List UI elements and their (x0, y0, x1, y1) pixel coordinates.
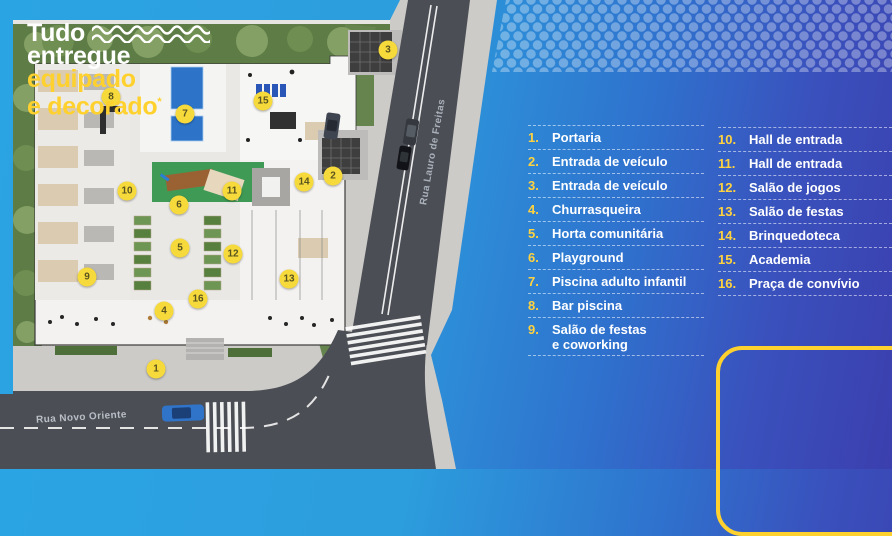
promo-box (716, 346, 892, 536)
legend-item-4: 4.Churrasqueira (528, 198, 704, 222)
legend-item-3: 3.Entrada de veículo (528, 174, 704, 198)
legend-item-number: 4. (528, 202, 545, 217)
legend-item-1: 1.Portaria (528, 126, 704, 150)
legend-item-number: 2. (528, 154, 545, 169)
map-marker-10: 10 (118, 182, 137, 201)
legend-item-number: 13. (718, 204, 742, 219)
legend-column-right: 10.Hall de entrada11.Hall de entrada12.S… (718, 127, 892, 296)
map-marker-4: 4 (155, 302, 174, 321)
legend-item-number: 14. (718, 228, 742, 243)
legend-item-label: Portaria (552, 130, 601, 145)
map-marker-5: 5 (171, 239, 190, 258)
legend-item-7: 7.Piscina adulto infantil (528, 270, 704, 294)
flyer-canvas: { "legend": { "left": [ {"num":"1.","lab… (0, 0, 892, 469)
legend-item-number: 7. (528, 274, 545, 289)
legend-item-label: Churrasqueira (552, 202, 641, 217)
legend-item-10: 10.Hall de entrada (718, 128, 892, 152)
legend-item-label: Entrada de veículo (552, 178, 668, 193)
legend-item-15: 15.Academia (718, 248, 892, 272)
legend-item-label: Horta comunitária (552, 226, 663, 241)
map-marker-14: 14 (295, 173, 314, 192)
legend-item-number: 15. (718, 252, 742, 267)
squiggle-icon (92, 25, 210, 43)
legend-item-5: 5.Horta comunitária (528, 222, 704, 246)
legend-item-label: Hall de entrada (749, 132, 842, 147)
legend-item-label: Brinquedoteca (749, 228, 840, 243)
promo-footnote-mark: * (157, 96, 161, 108)
legend-item-number: 11. (718, 156, 742, 171)
legend-item-11: 11.Hall de entrada (718, 152, 892, 176)
legend-item-number: 8. (528, 298, 545, 313)
legend-item-label: Entrada de veículo (552, 154, 668, 169)
map-marker-16: 16 (189, 290, 208, 309)
entrance-steps (186, 338, 224, 360)
legend-item-8: 8.Bar piscina (528, 294, 704, 318)
legend-item-label: Salão de festas (749, 204, 844, 219)
map-marker-13: 13 (280, 270, 299, 289)
map-marker-15: 15 (254, 92, 273, 111)
map-marker-12: 12 (224, 245, 243, 264)
legend-item-12: 12.Salão de jogos (718, 176, 892, 200)
legend-item-label: Piscina adulto infantil (552, 274, 686, 289)
legend-item-number: 5. (528, 226, 545, 241)
legend-item-number: 10. (718, 132, 742, 147)
promo-line-3: equipado (27, 68, 210, 91)
legend-item-number: 9. (528, 322, 545, 337)
legend-item-number: 16. (718, 276, 742, 291)
legend-item-label: Academia (749, 252, 810, 267)
legend-item-number: 1. (528, 130, 545, 145)
map-marker-1: 1 (147, 360, 166, 379)
legend-item-number: 6. (528, 250, 545, 265)
halftone-dots-pattern (492, 0, 892, 72)
map-marker-2: 2 (324, 167, 343, 186)
legend-item-number: 3. (528, 178, 545, 193)
legend-item-9: 9.Salão de festas e coworking (528, 318, 704, 356)
map-marker-11: 11 (223, 182, 242, 201)
legend-item-label: Bar piscina (552, 298, 622, 313)
legend-item-2: 2.Entrada de veículo (528, 150, 704, 174)
legend-item-number: 12. (718, 180, 742, 195)
legend-item-label: Praça de convívio (749, 276, 860, 291)
car-blue (162, 404, 205, 421)
promo-text: Tudo entregue equipado e decorado* (27, 22, 210, 118)
car-edge-clipped (0, 372, 12, 392)
map-marker-3: 3 (379, 41, 398, 60)
legend-item-label: Playground (552, 250, 624, 265)
map-marker-9: 9 (78, 268, 97, 287)
playground-area (152, 162, 264, 202)
legend-item-label: Salão de jogos (749, 180, 841, 195)
map-marker-6: 6 (170, 196, 189, 215)
legend-item-label: Salão de festas e coworking (552, 322, 647, 352)
legend-item-label: Hall de entrada (749, 156, 842, 171)
legend-column-left: 1.Portaria2.Entrada de veículo3.Entrada … (528, 125, 704, 356)
legend-item-13: 13.Salão de festas (718, 200, 892, 224)
legend-item-14: 14.Brinquedoteca (718, 224, 892, 248)
promo-line-4: e decorado* (27, 91, 210, 118)
legend-item-6: 6.Playground (528, 246, 704, 270)
legend-item-16: 16.Praça de convívio (718, 272, 892, 296)
